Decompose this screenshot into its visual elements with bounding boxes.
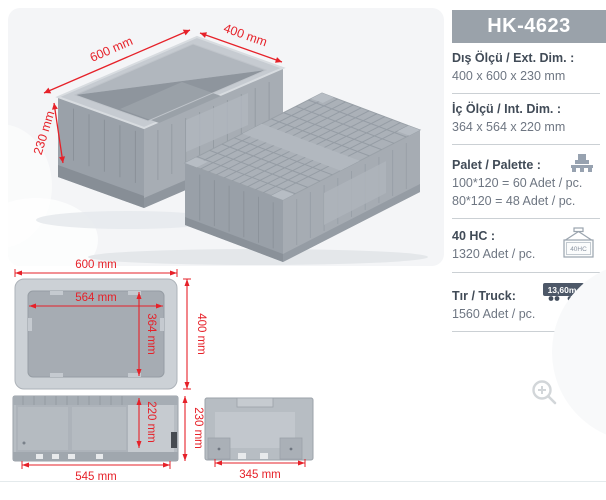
top-view-inner-depth: 364 mm xyxy=(145,313,157,355)
spec-row-ext-dim: Dış Ölçü / Ext. Dim. : 400 x 600 x 230 m… xyxy=(452,43,606,93)
ext-dim-value: 400 x 600 x 230 mm xyxy=(452,68,606,84)
pallet-label: Palet / Palette : xyxy=(452,158,541,173)
product-code-header: HK-4623 xyxy=(452,10,606,43)
product-image-area: 600 mm 400 mm 230 mm xyxy=(8,8,444,266)
spec-sidebar: HK-4623 Dış Ölçü / Ext. Dim. : 400 x 600… xyxy=(452,0,606,500)
spec-row-int-dim: İç Ölçü / Int. Dim. : 364 x 564 x 220 mm xyxy=(452,94,606,144)
top-view-outer-depth: 400 mm xyxy=(195,313,207,355)
pallet-value-1: 100*120 = 60 Adet / pc. xyxy=(452,175,606,191)
ext-dim-label: Dış Ölçü / Ext. Dim. : xyxy=(452,51,606,66)
int-dim-value: 364 x 564 x 220 mm xyxy=(452,119,606,135)
container-40hc-icon: 40HC xyxy=(560,227,598,263)
hero-dim-height: 230 mm xyxy=(31,109,58,156)
hero-illustration: 600 mm 400 mm 230 mm xyxy=(8,8,444,266)
int-dim-label: İç Ölçü / Int. Dim. : xyxy=(452,102,606,117)
hc40-icon-text: 40HC xyxy=(570,246,587,253)
side-view-inner-height: 220 mm xyxy=(145,401,157,443)
top-view-inner-width: 564 mm xyxy=(75,292,117,304)
pallet-icon xyxy=(568,153,596,173)
zoom-in-icon[interactable] xyxy=(529,377,559,407)
spec-row-pallet: Palet / Palette : 100*120 = 60 Adet / pc… xyxy=(452,145,606,218)
hc40-value: 1320 Adet / pc. xyxy=(452,246,535,262)
top-view-drawing: 600 mm 564 mm 364 mm 400 mm xyxy=(8,258,208,394)
top-view-outer-width: 600 mm xyxy=(75,259,117,271)
truck-label: Tır / Truck: xyxy=(452,289,516,304)
hc40-label: 40 HC : xyxy=(452,229,535,244)
spec-row-40hc: 40 HC : 1320 Adet / pc. 40HC xyxy=(452,219,606,272)
pallet-value-2: 80*120 = 48 Adet / pc. xyxy=(452,193,606,209)
end-view-bottom-width: 345 mm xyxy=(239,469,281,481)
hero-dim-length: 600 mm xyxy=(88,34,135,65)
hero-dim-width: 400 mm xyxy=(222,21,269,49)
product-code: HK-4623 xyxy=(487,15,571,37)
bottom-divider xyxy=(0,481,606,482)
